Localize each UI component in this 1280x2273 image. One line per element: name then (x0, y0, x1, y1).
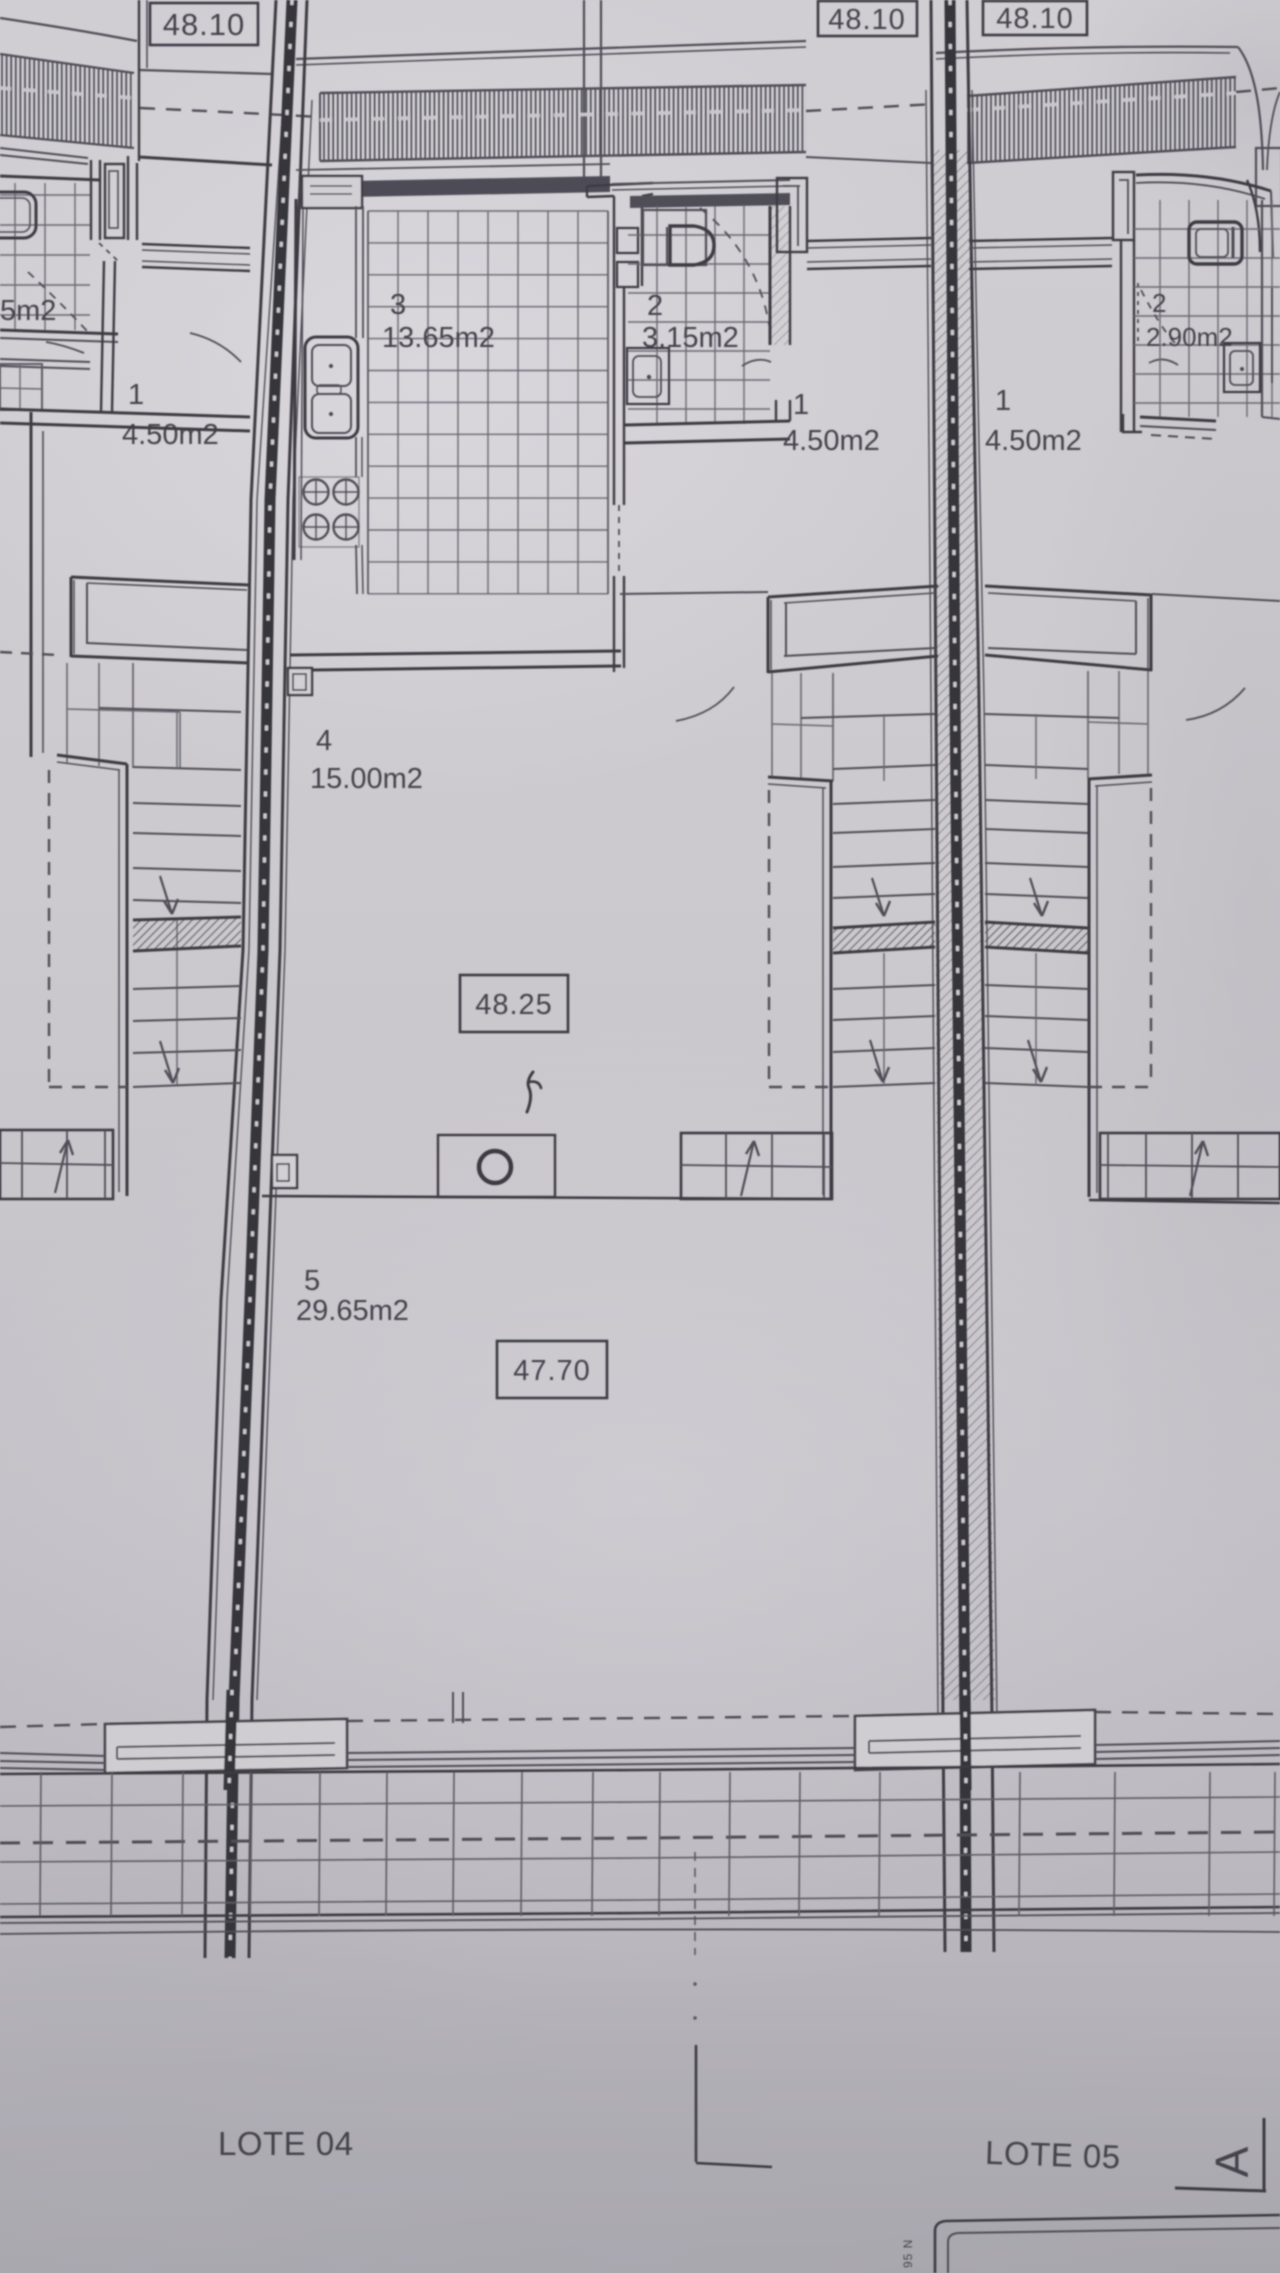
svg-text:29.65m2: 29.65m2 (296, 1295, 409, 1327)
svg-text:4.50m2: 4.50m2 (122, 419, 219, 451)
svg-text:1: 1 (128, 379, 144, 411)
svg-text:47.70: 47.70 (513, 1355, 591, 1387)
svg-text:2: 2 (1152, 288, 1166, 318)
svg-text:A: A (1206, 2146, 1258, 2177)
svg-text:2.90m2: 2.90m2 (1146, 322, 1233, 352)
svg-text:5: 5 (304, 1265, 320, 1297)
svg-text:4.50m2: 4.50m2 (985, 425, 1082, 457)
svg-text:1: 1 (793, 389, 809, 421)
svg-text:13.65m2: 13.65m2 (382, 322, 495, 354)
svg-text:48.10: 48.10 (996, 3, 1074, 35)
svg-text:15.00m2: 15.00m2 (310, 763, 423, 795)
svg-text:48.10: 48.10 (163, 7, 246, 42)
svg-text:2: 2 (647, 290, 663, 322)
svg-text:3.15m2: 3.15m2 (642, 322, 739, 354)
svg-text:1: 1 (995, 385, 1011, 417)
svg-text:95 N: 95 N (901, 2239, 915, 2268)
svg-text:48.25: 48.25 (475, 989, 553, 1021)
svg-text:LOTE 04: LOTE 04 (218, 2125, 354, 2162)
svg-text:5m2: 5m2 (0, 295, 56, 327)
svg-text:4.50m2: 4.50m2 (783, 425, 880, 457)
svg-text:LOTE 05: LOTE 05 (984, 2134, 1121, 2176)
svg-text:48.10: 48.10 (828, 4, 906, 36)
svg-text:3: 3 (390, 289, 406, 321)
svg-text:4: 4 (316, 725, 332, 757)
